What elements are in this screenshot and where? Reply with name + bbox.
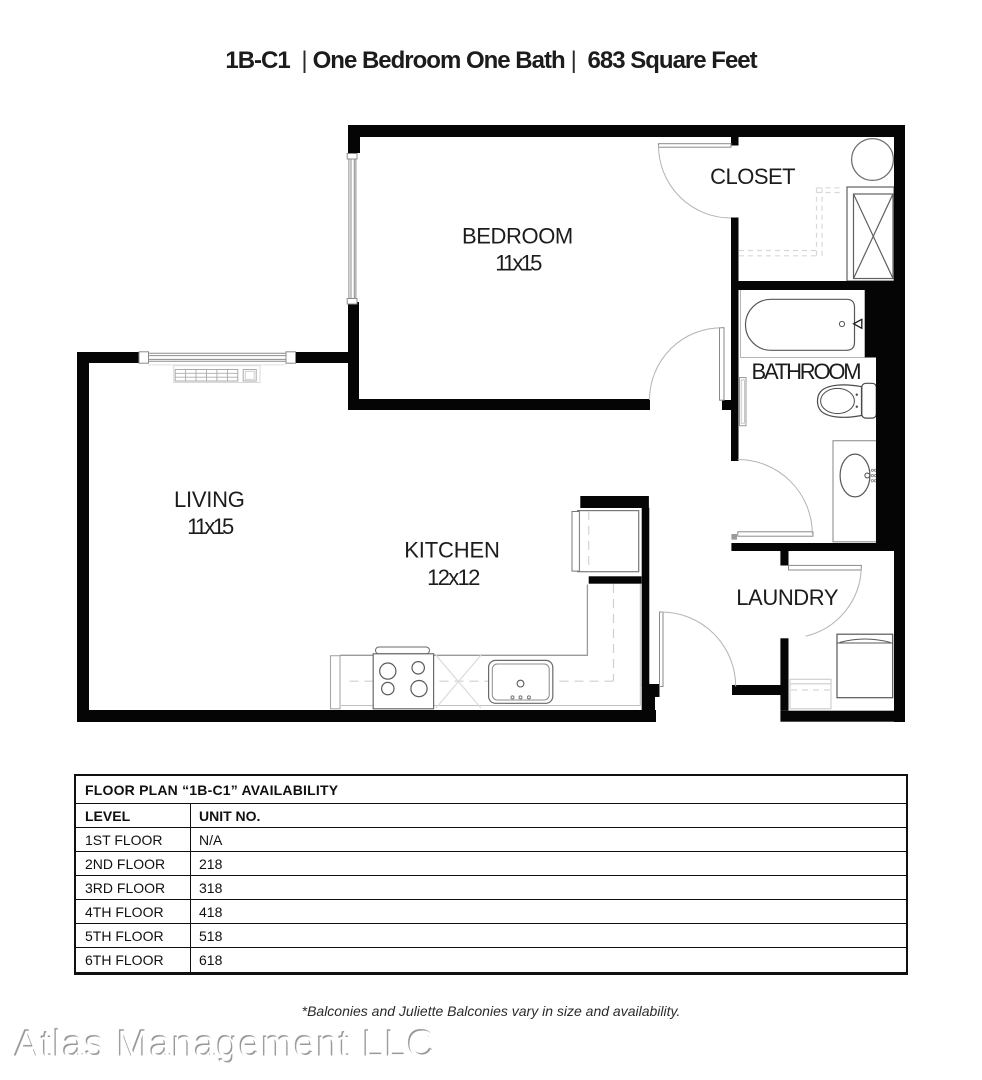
svg-text:CLOSET: CLOSET (710, 164, 795, 189)
svg-text:LIVING: LIVING (174, 487, 245, 512)
svg-text:BEDROOM: BEDROOM (462, 224, 573, 249)
svg-text:11x15: 11x15 (187, 514, 234, 539)
svg-text:KITCHEN: KITCHEN (404, 537, 500, 562)
svg-text:11x15: 11x15 (495, 250, 542, 275)
svg-text:12x12: 12x12 (427, 565, 480, 590)
svg-text:LAUNDRY: LAUNDRY (736, 585, 839, 610)
svg-text:BATHROOM: BATHROOM (752, 359, 861, 384)
